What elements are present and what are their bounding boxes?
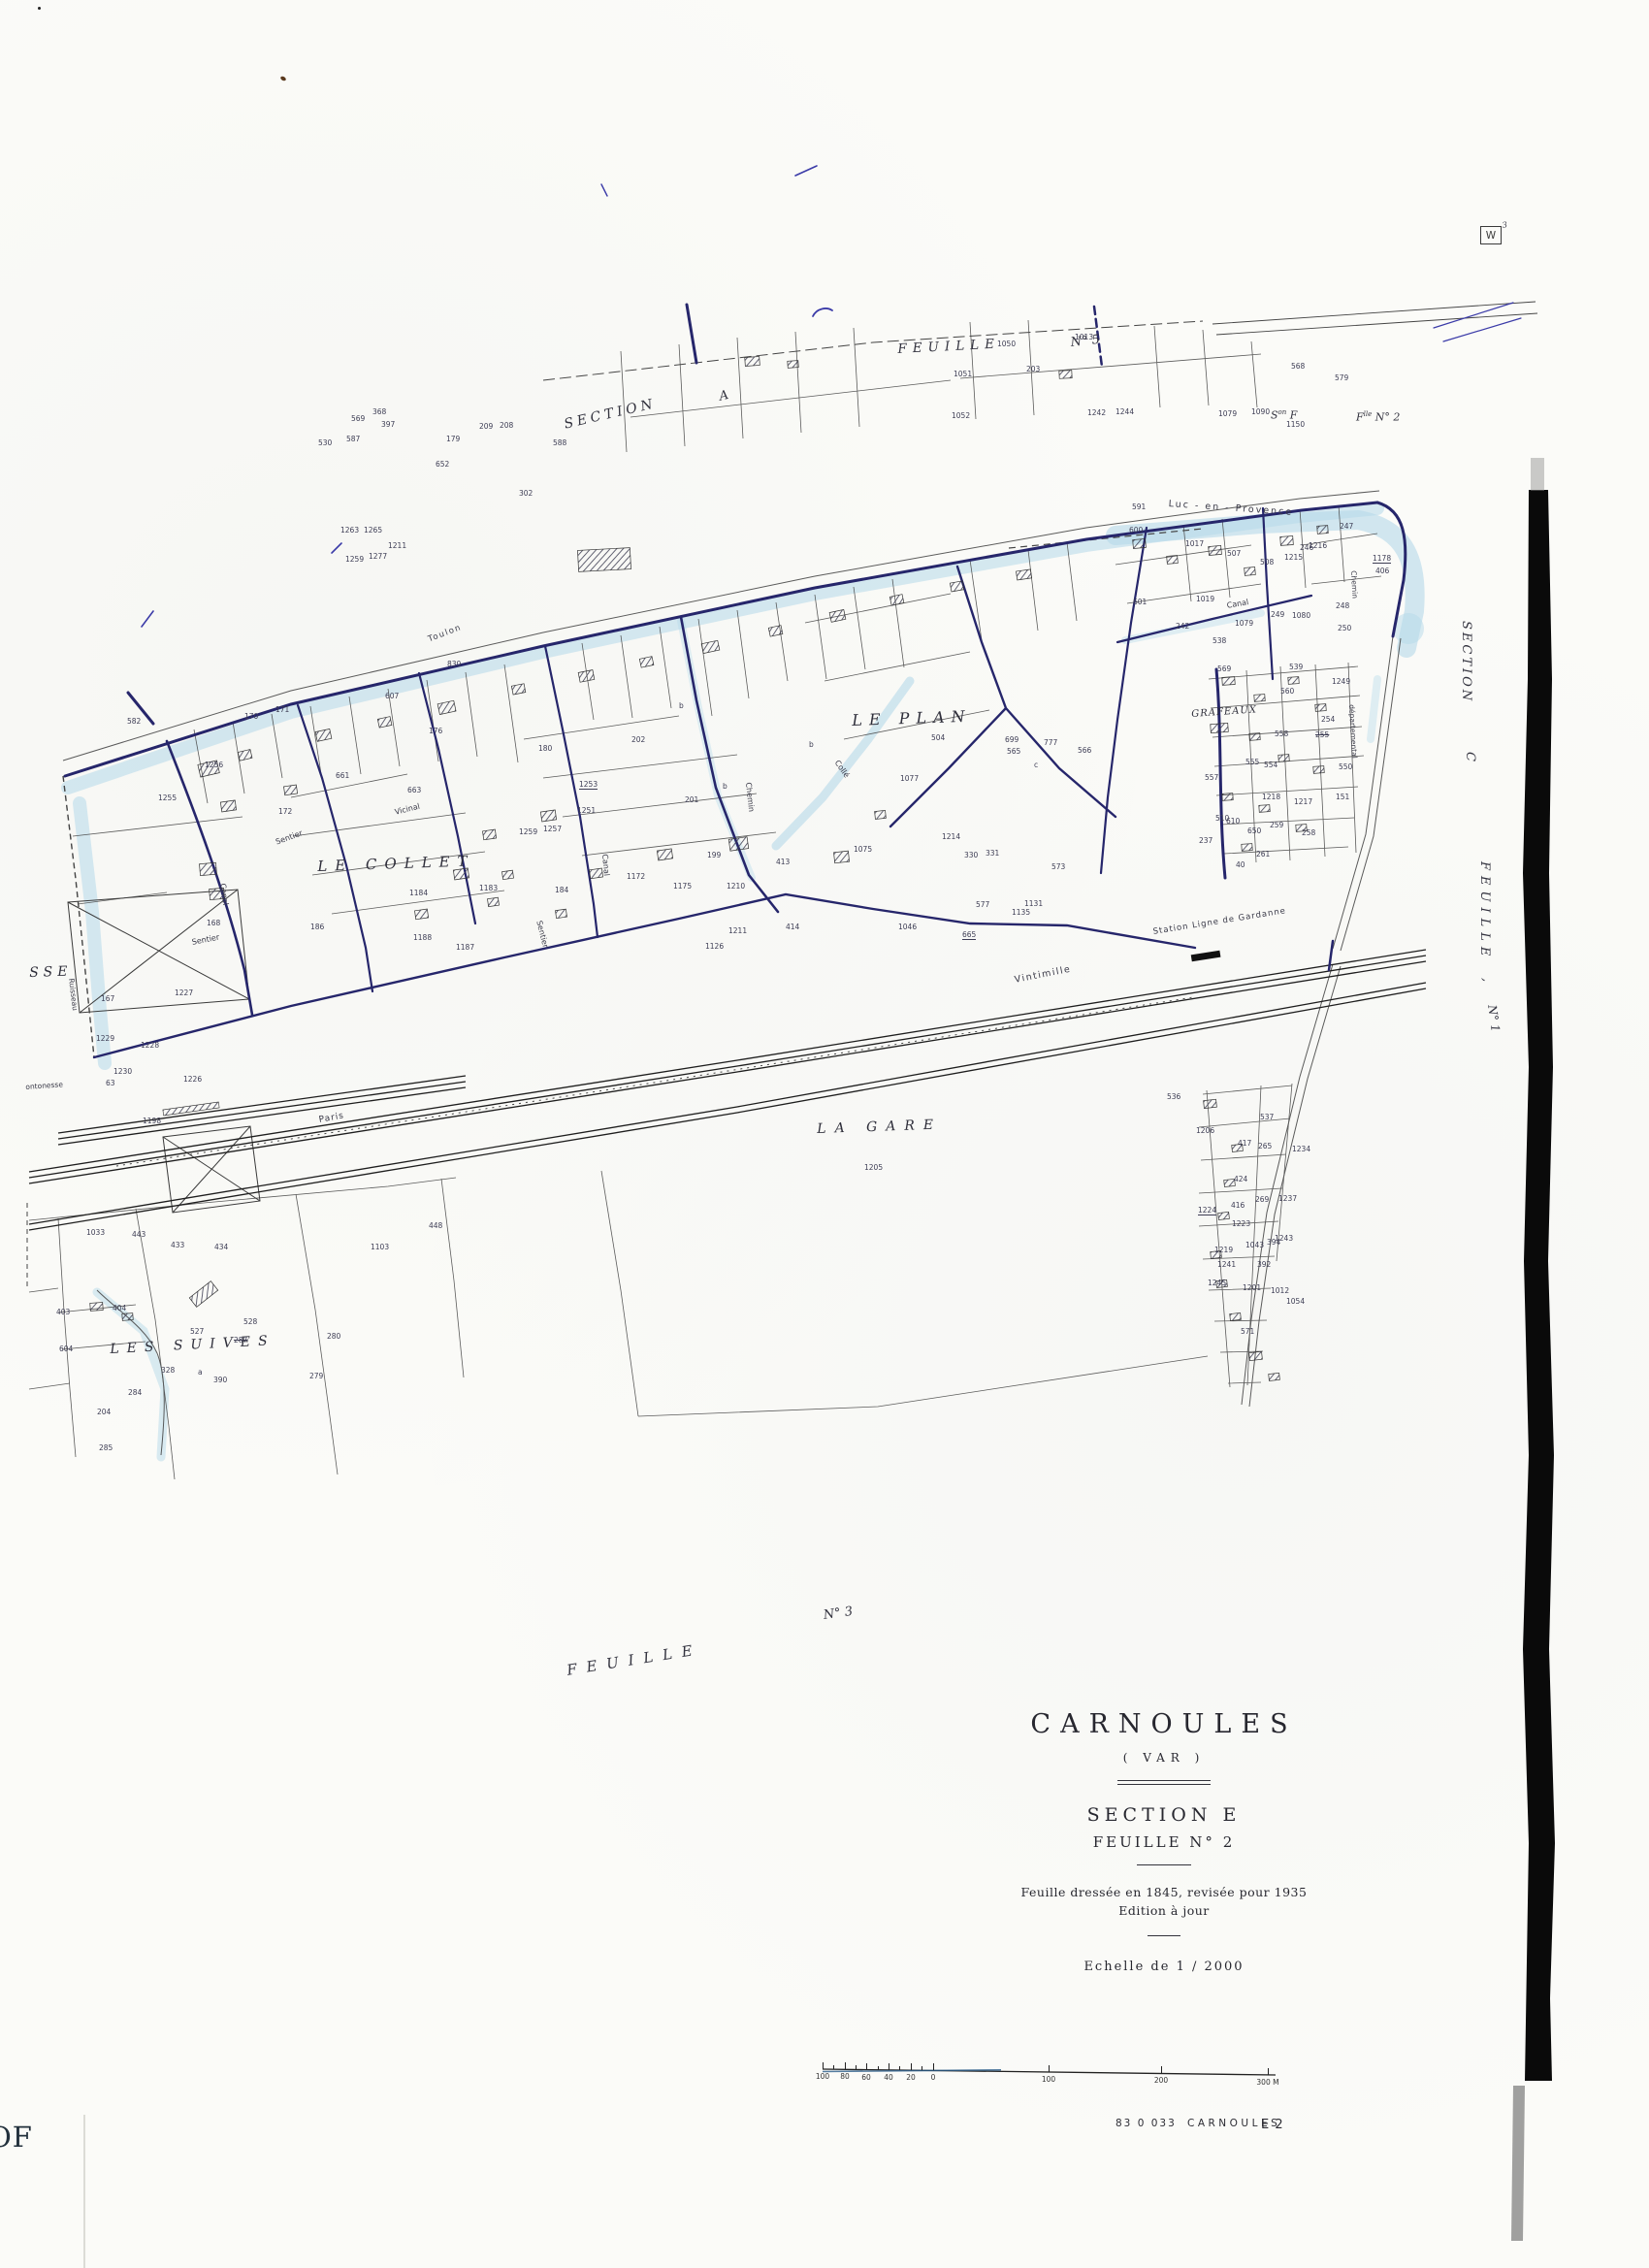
parcel-number: 203 [1026,365,1040,373]
parcel-number: 331 [986,849,999,858]
paper-crease [83,2115,85,2268]
parcel-number: 1245 [1208,1279,1226,1287]
parcel-number: 328 [161,1366,175,1375]
parcel-number: 604 [59,1345,73,1353]
scale-tick-label: 100 [1042,2075,1055,2084]
parcel-number: a [198,1368,203,1377]
place-label: LA GARE [817,1118,942,1137]
parcel-number: 1019 [1196,595,1214,603]
archive-ref-code: E 2 [1261,2118,1284,2132]
scale-tick [845,2062,846,2069]
road-label: Canal [218,883,230,906]
parcel-number: 1218 [1262,793,1280,801]
scale-tick-label: 0 [931,2073,936,2082]
parcel-number: 1242 [1087,408,1106,417]
parcel-number: 1263 [340,526,359,535]
road-label: Collé [833,759,852,779]
parcel-number: 588 [553,438,566,447]
parcel-number: 424 [1234,1175,1247,1183]
scale-tick-label: 100 [816,2072,829,2081]
parcel-number: 601 [1133,598,1147,606]
parcel-number: 1215 [1284,553,1303,562]
corner-of-text: OF [0,2121,33,2154]
parcel-number: 1054 [1286,1297,1305,1306]
parcel-number: 607 [385,692,399,700]
scale-tick [856,2065,857,2069]
parcel-number: 1080 [1292,611,1310,620]
parcel-number: 1184 [409,889,428,897]
road-label: Chemin [1349,570,1359,599]
parcel-number: 285 [99,1443,113,1452]
parcel-number: 568 [1291,362,1305,371]
parcel-number: 269 [1255,1195,1269,1204]
parcel-number: 538 [1212,636,1226,645]
parcel-number: 1013 [1075,333,1093,341]
parcel-number: 1265 [364,526,382,535]
parcel-number: 433 [171,1241,184,1249]
parcel-number: 1211 [388,541,406,550]
parcel-number: 661 [336,771,349,780]
parcel-number: 1188 [413,933,432,942]
scale-tick [899,2066,900,2070]
parcel-number: 1227 [175,988,193,997]
parcel-number: 1241 [1217,1260,1236,1269]
parcel-number: 201 [685,795,698,804]
parcel-number: c [1034,761,1038,769]
road-label: Toulon [427,623,463,644]
road-label: Paris [318,1111,345,1124]
scale-tick [823,2062,824,2069]
dust-speck [38,7,41,10]
parcel-number: 302 [519,489,533,498]
parcel-number: 202 [631,735,645,744]
parcel-number: 258 [1302,828,1315,837]
parcel-number: 265 [1258,1142,1272,1150]
parcel-number: 507 [1227,549,1241,558]
place-label: GRAFEAUX [1191,704,1257,720]
scale-tick [889,2063,889,2070]
parcel-number: 1253 [579,780,598,790]
parcel-number: 259 [1270,821,1283,829]
parcel-number: 1277 [369,552,387,561]
road-label: Chemin [744,782,756,812]
parcel-number: 1175 [673,882,692,891]
road-label: Vicinal [394,802,421,817]
parcel-number: 1259 [345,555,364,564]
parcel-number: 416 [1231,1201,1245,1210]
parcel-number: 508 [1260,558,1274,567]
parcel-number: 176 [429,727,442,735]
scale-tick-label: 60 [861,2073,871,2082]
parcel-number: 1033 [86,1228,105,1237]
parcel-number: 665 [962,930,976,940]
margin-label: , [1479,978,1494,982]
parcel-number: 413 [776,858,790,866]
parcel-number: 830 [447,660,461,668]
parcel-number: 434 [214,1243,228,1251]
scale-tick-label: 300 M [1256,2078,1278,2087]
section-f-ref: Son F [1271,408,1297,422]
parcel-number: 1090 [1251,407,1270,416]
parcel-number: 1135 [1012,908,1030,917]
parcel-number: 1172 [627,872,645,881]
parcel-number: 555 [1245,758,1259,766]
parcel-number: 254 [1321,715,1335,724]
map-label-layer: FEUILLEN° 5SECTIONASECTIONCFEUILLE,N° 1F… [0,0,1649,2268]
parcel-number: 63 [106,1079,115,1087]
scale-tick [933,2063,934,2070]
parcel-number: 1229 [96,1034,114,1043]
parcel-number: 1219 [1214,1246,1233,1254]
parcel-number: 171 [275,705,289,714]
parcel-number: 180 [538,744,552,753]
parcel-number: 242 [1176,622,1189,631]
road-label: ontonesse [25,1080,63,1091]
scale-tick-label: 40 [884,2073,893,2082]
sheet-title: FEUILLE N° 2 [1093,1833,1236,1851]
parcel-number: 566 [1078,746,1091,755]
parcel-number: 172 [278,807,292,816]
parcel-number: 527 [190,1327,204,1336]
parcel-number: 1206 [1196,1126,1214,1135]
parcel-number: 261 [1256,850,1270,859]
road-label: Luc - en - Provence [1168,499,1293,518]
parcel-number: 1052 [952,411,970,420]
margin-label: FEUILLE [566,1640,703,1679]
parcel-number: 247 [1340,522,1353,531]
parcel-number: 1255 [158,794,177,802]
parcel-number: 577 [976,900,989,909]
parcel-number: 1187 [456,943,474,952]
parcel-number: 1103 [371,1243,389,1251]
parcel-number: 1214 [942,832,960,841]
parcel-number: 1075 [854,845,872,854]
road-label: Ruisseau [67,978,80,1011]
parcel-number: 1210 [727,882,745,891]
parcel-number: 368 [372,407,386,416]
parcel-number: b [809,740,814,749]
parcel-number: 610 [1226,817,1240,826]
parcel-number: 179 [446,435,460,443]
divider-short [1148,1935,1180,1936]
parcel-number: 394 [1267,1238,1280,1247]
scanned-cadastral-map-page: { "colors": {"ink":"#2e2e3a","navy":"#26… [0,0,1649,2268]
place-label: LE COLLET [317,852,475,875]
parcel-number: 237 [1199,836,1212,845]
parcel-number: 1257 [543,825,562,833]
parcel-number: 397 [381,420,395,429]
parcel-number: 279 [309,1372,323,1380]
parcel-number: 1259 [519,827,537,836]
parcel-number: 403 [56,1308,70,1316]
road-label: Canal [600,854,611,876]
parcel-number: 1223 [1232,1219,1250,1228]
parcel-number: 650 [1247,826,1261,835]
parcel-number: 1217 [1294,797,1312,806]
parcel-number: 569 [1217,664,1231,673]
parcel-number: 1249 [1332,677,1350,686]
parcel-number: 443 [132,1230,145,1239]
scale-tick [1049,2065,1050,2072]
parcel-number: 1224 [1198,1206,1216,1215]
scale-tick [921,2066,922,2070]
margin-label: 3 [1502,220,1508,230]
parcel-number: 1244 [1115,407,1134,416]
parcel-number: 652 [436,460,449,469]
ref-rest: F [1286,409,1297,422]
divider-single [1137,1864,1191,1865]
revision-note: Feuille dressée en 1845, revisée pour 19… [1021,1885,1308,1899]
parcel-number: 280 [327,1332,340,1341]
department-name: ( VAR ) [1123,1751,1206,1765]
edition-note: Edition à jour [1118,1903,1210,1918]
parcel-number: b [723,782,727,791]
parcel-number: 284 [128,1388,142,1397]
parcel-number: 537 [1260,1113,1274,1121]
parcel-number: 1211 [728,926,747,935]
parcel-number: 579 [1335,373,1348,382]
parcel-number: 554 [1264,761,1277,769]
parcel-number: 1017 [1185,539,1204,548]
ref-rest: N° 2 [1372,411,1400,424]
parcel-number: 186 [310,923,324,931]
scale-tick [878,2066,879,2070]
parcel-number: 151 [1336,793,1349,801]
margin-label: A [718,388,730,405]
parcel-number: 504 [931,733,945,742]
road-label: Sentier [534,920,550,949]
parcel-number: 390 [213,1376,227,1384]
parcel-number: 250 [1338,624,1351,632]
parcel-number: 600 [1129,526,1143,535]
parcel-number: 1126 [705,942,724,951]
margin-label: SECTION [563,396,658,432]
parcel-number: 557 [1205,773,1218,782]
parcel-number: 1050 [997,340,1016,348]
parcel-number: 1230 [113,1067,132,1076]
parcel-number: 249 [1271,610,1284,619]
parcel-number: 184 [555,886,568,894]
parcel-number: 1205 [864,1163,883,1172]
scale-note: Echelle de 1 / 2000 [1083,1960,1244,1974]
scale-tick [1268,2068,1269,2075]
parcel-number: 414 [786,923,799,931]
parcel-number: 287 [234,1336,247,1345]
road-label: départemental [1347,704,1359,759]
parcel-number: 1237 [1278,1194,1297,1203]
parcel-number: 1251 [577,806,596,815]
road-label: Canal [1226,598,1249,610]
scale-tick-label: 80 [840,2072,850,2081]
parcel-number: 558 [1275,729,1288,738]
scale-tick [866,2063,867,2070]
parcel-number: 528 [243,1317,257,1326]
parcel-number: 1043 [1245,1241,1264,1249]
parcel-number: 530 [318,438,332,447]
parcel-number: 208 [500,421,513,430]
road-label: Sentier [191,933,220,947]
parcel-number: 448 [429,1221,442,1230]
parcel-number: 550 [1339,762,1352,771]
parcel-number: 209 [479,422,493,431]
parcel-number: 1256 [205,761,223,769]
margin-label: N° 1 [1485,1004,1503,1033]
parcel-number: 1079 [1218,409,1237,418]
margin-label: N° 3 [823,1604,854,1623]
parcel-number: 1079 [1235,619,1253,628]
parcel-number: 1198 [143,1117,161,1125]
parcel-number: 1178 [1373,554,1391,564]
parcel-number: 565 [1007,747,1020,756]
road-label: Vintimille [1014,964,1072,986]
feuille-ref: Flle N° 2 [1356,410,1400,424]
parcel-number: 587 [346,435,360,443]
scale-tick [1161,2066,1162,2073]
margin-label: FEUILLE [1477,861,1492,961]
parcel-number: 591 [1132,502,1146,511]
parcel-number: 199 [707,851,721,859]
scale-tick-label: 200 [1154,2076,1168,2085]
parcel-number: 248 [1336,601,1349,610]
commune-name: CARNOULES [1030,1709,1297,1739]
section-title: SECTION E [1087,1804,1242,1826]
parcel-number: 573 [1051,862,1065,871]
parcel-number: 1226 [183,1075,202,1084]
parcel-number: 569 [351,414,365,423]
ref-sup: lle [1364,410,1373,418]
parcel-number: 560 [1280,687,1294,696]
parcel-number: 1077 [900,774,919,783]
parcel-number: 1046 [898,923,917,931]
parcel-number: 170 [244,712,258,721]
margin-label: FEUILLE [897,336,1000,357]
ref-base: S [1271,409,1278,422]
place-label: LES SUIVES [110,1333,275,1357]
parcel-number: b [679,701,684,710]
margin-label: C [1463,752,1477,761]
parcel-number: 539 [1289,663,1303,671]
ref-base: F [1356,411,1364,424]
parcel-number: 699 [1005,735,1018,744]
parcel-number: 1012 [1271,1286,1289,1295]
parcel-number: 1201 [1243,1283,1261,1292]
parcel-number: 663 [407,786,421,794]
ref-sup: on [1278,408,1287,416]
title-block: CARNOULES ( VAR ) SECTION E FEUILLE N° 2… [1009,1709,1319,1974]
parcel-number: 204 [97,1408,111,1416]
parcel-number: 1183 [479,884,498,892]
divider-double [1117,1780,1211,1785]
parcel-number: 40 [1236,860,1245,869]
parcel-number: 1131 [1024,899,1043,908]
place-label: LE PLAN [852,707,972,729]
parcel-number: 255 [1315,730,1329,739]
parcel-number: 571 [1241,1327,1254,1336]
parcel-number: 536 [1167,1092,1180,1101]
parcel-number: 167 [101,994,114,1003]
w-stamp: W [1480,226,1502,244]
scale-tick [833,2065,834,2069]
parcel-number: 417 [1238,1139,1251,1148]
parcel-number: 582 [127,717,141,726]
road-label: Sentier [275,828,304,846]
margin-label: SECTION [1459,621,1473,703]
parcel-number: 392 [1257,1260,1271,1269]
scale-tick [911,2063,912,2070]
parcel-number: 330 [964,851,978,859]
parcel-number: 246 [1300,543,1313,552]
parcel-number: 406 [1375,567,1389,575]
parcel-number: 168 [207,919,220,927]
scale-tick-label: 20 [906,2073,916,2082]
parcel-number: 404 [113,1304,126,1312]
archive-ref-number: 83 0 033 [1115,2118,1177,2129]
road-label: Station Ligne de Gardanne [1152,906,1287,937]
parcel-number: 1234 [1292,1145,1310,1153]
parcel-number: 1051 [954,370,972,378]
parcel-number: 1228 [141,1041,159,1050]
parcel-number: 777 [1044,738,1057,747]
